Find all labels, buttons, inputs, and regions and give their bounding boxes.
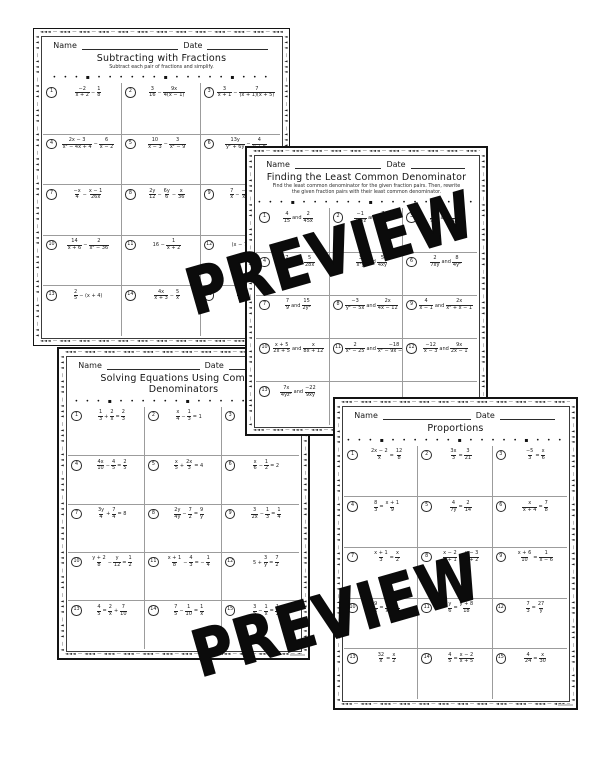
problem-expression: 4x10−45=25 — [95, 460, 129, 473]
problem-cell: 7 79and152y² — [256, 295, 329, 338]
problem-number: 5 — [148, 460, 159, 471]
problem-number: 12 — [204, 240, 215, 251]
border-pattern-bottom: ◄◄◄ — ◄◄◄ — ◄◄◄ — ◄◄◄ — ◄◄◄ — ◄◄◄ — ◄◄◄ … — [341, 702, 570, 707]
date-blank-line — [500, 410, 555, 420]
problem-number: 5 — [125, 139, 136, 150]
problem-cell: 1 −2x + 2−18 — [43, 83, 122, 134]
problem-number: 1 — [71, 411, 82, 422]
problem-cell: 11 x + 18−43= −14 — [145, 552, 222, 600]
problem-cell: 13 45=2x+710 — [68, 600, 145, 648]
problem-cell: 4 83=x + 19 — [344, 496, 418, 547]
problem-number: 6 — [204, 139, 215, 150]
problem-number: 15 — [225, 605, 236, 616]
problem-cell: 1 2x − 2x=128 — [344, 446, 418, 497]
problem-expression: 3x3=321 — [448, 449, 474, 462]
problem-cell: 15 424=x30 — [493, 648, 567, 699]
problem-expression: x4−13= 1 — [174, 410, 204, 423]
problem-expression: 7x4yz²and−229xy — [278, 386, 318, 399]
name-blank-line — [383, 410, 471, 420]
worksheet-least-common-denominator: ◄◄◄ — ◄◄◄ — ◄◄◄ — ◄◄◄ — ◄◄◄ — ◄◄◄ — ◄◄◄ … — [245, 146, 488, 436]
problem-cell: 11 2x² − 25and−18x² − 9x − 18 — [330, 338, 403, 381]
problem-number: 14 — [421, 653, 432, 664]
problem-expression: 316−9x4(x − 1) — [147, 87, 187, 100]
problem-expression: 2x − 3x² − 4x + 4−6x − 2 — [60, 138, 116, 151]
problem-expression: 16 −1x + 2 — [151, 239, 183, 252]
problem-number: 9 — [225, 509, 236, 520]
problem-number: 11 — [148, 557, 159, 568]
problem-cell: 5 10x − 3−3x² − 9 — [122, 134, 201, 185]
problem-cell: 7 x + 13=x2 — [344, 547, 418, 598]
problems-grid: 1 13+2x=23 2 x4−13= 1 3 x2+14= 3 4 — [68, 407, 298, 649]
problem-cell: 8 −3y² − 5xand2x4x − 12 — [330, 295, 403, 338]
page-title: Subtracting with Fractions — [41, 53, 281, 64]
problem-number: 5 — [333, 257, 344, 268]
problem-expression: x + 610=1x − 6 — [515, 551, 555, 564]
problem-number: 2 — [148, 411, 159, 422]
problem-expression: 32x=x2 — [375, 653, 398, 666]
problem-number: 4 — [347, 501, 358, 512]
problem-cell: 15 35−1x=12 — [222, 600, 299, 648]
problem-number: 8 — [333, 300, 344, 311]
problem-cell: 5 x5+2x3= 4 — [145, 455, 222, 503]
problem-cell: 4 4x10−45=25 — [68, 455, 145, 503]
problem-number: 9 — [496, 552, 507, 563]
problem-cell: 1 13+2x=23 — [68, 407, 145, 455]
name-date-row: Name Date — [53, 40, 269, 50]
problem-cell: 10 x + 52x + 5andx8x + 12 — [256, 338, 329, 381]
border-pattern-left: ◄◄◄ — ◄◄◄ — ◄◄◄ — ◄◄◄ — ◄◄◄ — ◄◄◄ — ◄◄◄ … — [60, 355, 65, 652]
problem-cell: 2 −12xyzand7xy²z³ — [330, 208, 403, 251]
problem-expression: 14x + 6−2x² − 36 — [65, 239, 110, 252]
problem-number: 6 — [496, 501, 507, 512]
problem-cell: 13 7x4yz²and−229xy — [256, 381, 329, 424]
problem-expression: 3y4+74= 8 — [95, 508, 128, 521]
border-pattern-right: ◄◄◄ — ◄◄◄ — ◄◄◄ — ◄◄◄ — ◄◄◄ — ◄◄◄ — ◄◄◄ … — [570, 405, 575, 702]
problem-expression: 32x−13=14 — [249, 508, 283, 521]
problem-number: 9 — [204, 189, 215, 200]
problem-cell: 1 415and245x — [256, 208, 329, 251]
problem-number: 13 — [71, 605, 82, 616]
problem-number: 13 — [259, 386, 270, 397]
border-pattern-top: ◄◄◄ — ◄◄◄ — ◄◄◄ — ◄◄◄ — ◄◄◄ — ◄◄◄ — ◄◄◄ … — [341, 400, 570, 405]
date-label: Date — [183, 42, 202, 50]
problem-cell: 3 3x + 1−7(x + 1)(x + 5) — [201, 83, 280, 134]
name-blank-line — [295, 159, 382, 169]
problem-number: 6 — [406, 257, 417, 268]
name-label: Name — [53, 42, 77, 50]
problem-expression: 424=x30 — [522, 653, 548, 666]
problem-expression: −12xyzand7xy²z³ — [352, 212, 392, 225]
problem-expression: 73=27y — [524, 602, 547, 615]
problem-number: 7 — [259, 300, 270, 311]
name-label: Name — [78, 362, 102, 370]
problem-number: 15 — [496, 653, 507, 664]
problem-expression: 47y=214 — [448, 501, 474, 514]
problem-number: 7 — [347, 552, 358, 563]
problem-number: 3 — [225, 411, 236, 422]
border-pattern-top: ◄◄◄ — ◄◄◄ — ◄◄◄ — ◄◄◄ — ◄◄◄ — ◄◄◄ — ◄◄◄ … — [253, 149, 480, 154]
problem-cell: 3 −49u²and315v — [403, 208, 476, 251]
problem-expression: 4x − 1and2xx² + x − 1 — [417, 299, 475, 312]
problem-cell: 5 47y=214 — [418, 496, 492, 547]
problem-number: 8 — [148, 509, 159, 520]
problem-cell: 14 75−110=1x — [145, 600, 222, 648]
problem-number: 8 — [125, 189, 136, 200]
problem-expression: 75−110=1x — [172, 605, 206, 618]
problem-expression: 9x=28x + 3 — [372, 602, 402, 615]
problem-number: 4 — [71, 460, 82, 471]
date-label: Date — [386, 161, 405, 169]
problem-number: 12 — [496, 603, 507, 614]
name-date-row: Name Date — [354, 410, 556, 420]
problem-cell: 3 −53=x6 — [493, 446, 567, 497]
problem-cell: 12 −12x − 3and9x2x − 1 — [403, 338, 476, 381]
border-pattern-bottom: ◄◄◄ — ◄◄◄ — ◄◄◄ — ◄◄◄ — ◄◄◄ — ◄◄◄ — ◄◄◄ … — [65, 652, 302, 657]
problem-cell: 6 27xyand84y² — [403, 252, 476, 295]
problem-expression: −49u²and315v — [428, 212, 464, 225]
page-title: Finding the Least Common Denominator — [254, 172, 478, 183]
problem-expression: 83=x + 19 — [372, 501, 402, 514]
problem-expression: 45=2x+710 — [95, 605, 129, 618]
problem-cell: 14 45=x − 2x + 5 — [418, 648, 492, 699]
problem-cell: 12 5 +3y=72 — [222, 552, 299, 600]
dots-divider: • • • ▪ • • • • • • ▪ • • • • • ▪ • • • — [342, 437, 568, 444]
problem-cell: 13 25− (x + 4) — [43, 285, 122, 336]
border-pattern-top: ◄◄◄ — ◄◄◄ — ◄◄◄ — ◄◄◄ — ◄◄◄ — ◄◄◄ — ◄◄◄ … — [40, 30, 283, 35]
problem-number: 4 — [259, 257, 270, 268]
problem-number: 11 — [125, 240, 136, 251]
problem-expression: 415and245x — [281, 212, 315, 225]
problem-number: 8 — [421, 552, 432, 563]
problem-expression: x + 52x + 5andx8x + 12 — [271, 343, 326, 356]
problem-number: 3 — [406, 212, 417, 223]
problem-number: 2 — [333, 212, 344, 223]
problem-cell: 2 316−9x4(x − 1) — [122, 83, 201, 134]
problem-expression: 25− (x + 4) — [72, 290, 105, 303]
problem-expression: 10x − 3−3x² − 9 — [146, 138, 188, 151]
problem-cell: 11 y6=y + 818 — [418, 598, 492, 649]
problem-cell: 5 3x²yand54xy — [330, 252, 403, 295]
problem-number: 12 — [225, 557, 236, 568]
problem-expression: 2x − 2x=128 — [368, 449, 404, 462]
problem-number: 10 — [259, 343, 270, 354]
name-label: Name — [266, 161, 290, 169]
border-pattern-right: ◄◄◄ — ◄◄◄ — ◄◄◄ — ◄◄◄ — ◄◄◄ — ◄◄◄ — ◄◄◄ … — [480, 154, 485, 428]
problem-number: 10 — [71, 557, 82, 568]
page-title: Proportions — [342, 423, 568, 434]
problem-number: 4 — [46, 139, 57, 150]
dots-divider: • • • ▪ • • • • • • ▪ • • • • • ▪ • • • — [41, 74, 281, 81]
problem-cell: 9 x + 610=1x − 6 — [493, 547, 567, 598]
date-label: Date — [476, 412, 495, 420]
worksheet-proportions: ◄◄◄ — ◄◄◄ — ◄◄◄ — ◄◄◄ — ◄◄◄ — ◄◄◄ — ◄◄◄ … — [333, 397, 578, 710]
problem-cell: 13 32x=x2 — [344, 648, 418, 699]
problem-number: 13 — [347, 653, 358, 664]
problem-number: 10 — [46, 240, 57, 251]
dots-divider: • • • ▪ • • • • • • ▪ • • • • • ▪ • • • — [254, 199, 478, 206]
problem-expression: 3x²yand54xy — [354, 256, 389, 269]
border-pattern-left: ◄◄◄ — ◄◄◄ — ◄◄◄ — ◄◄◄ — ◄◄◄ — ◄◄◄ — ◄◄◄ … — [35, 35, 40, 339]
problem-cell: 10 14x + 6−2x² − 36 — [43, 235, 122, 286]
problem-cell: 7 3y4+74= 8 — [68, 504, 145, 552]
problem-number: 5 — [421, 501, 432, 512]
problem-number: 6 — [225, 460, 236, 471]
problem-expression: −12x − 3and9x2x − 1 — [421, 343, 470, 356]
problem-number: 14 — [148, 605, 159, 616]
problem-cell: 8 x − 2x + 1=x − 3x + 2 — [418, 547, 492, 598]
problem-cell: 10 9x=28x + 3 — [344, 598, 418, 649]
problems-grid: 1 2x − 2x=128 2 3x3=321 3 −53=x6 4 — [344, 446, 566, 699]
problem-cell: 6 x6−12= 2 — [222, 455, 299, 503]
problem-number: 3 — [204, 87, 215, 98]
problem-cell: 4 2x − 3x² − 4x + 4−6x − 2 — [43, 134, 122, 185]
problem-expression: y + 28−y12=12 — [90, 556, 134, 569]
problem-cell: 14 4xx + 3−5x — [122, 285, 201, 336]
problem-expression: x + 13=x2 — [372, 551, 402, 564]
page-subtitle: Subtract each pair of fractions and simp… — [41, 65, 281, 71]
problem-cell: 8 2y4y−72=9y — [145, 504, 222, 552]
problem-expression: 45=x − 2x + 5 — [446, 653, 476, 666]
problem-expression: 2y12−6y6−x36 — [147, 189, 187, 202]
problem-expression: 79and152y² — [283, 299, 313, 312]
name-label: Name — [354, 412, 378, 420]
problem-number: 1 — [259, 212, 270, 223]
problem-number: 9 — [406, 300, 417, 311]
date-blank-line — [411, 159, 465, 169]
problem-number: 3 — [496, 450, 507, 461]
problem-expression: x6−12= 2 — [251, 460, 281, 473]
border-pattern-left: ◄◄◄ — ◄◄◄ — ◄◄◄ — ◄◄◄ — ◄◄◄ — ◄◄◄ — ◄◄◄ … — [336, 405, 341, 702]
problem-number: 15 — [204, 290, 215, 301]
problem-number: 2 — [421, 450, 432, 461]
problem-expression: 2y4y−72=9y — [172, 508, 206, 521]
problem-number: 11 — [421, 603, 432, 614]
preview-canvas: ◄◄◄ — ◄◄◄ — ◄◄◄ — ◄◄◄ — ◄◄◄ — ◄◄◄ — ◄◄◄ … — [0, 0, 600, 776]
date-blank-line — [207, 40, 267, 50]
problem-cell: 10 y + 28−y12=12 — [68, 552, 145, 600]
problem-cell: 7 −x4−x − 126x — [43, 184, 122, 235]
problem-number: 7 — [71, 509, 82, 520]
problem-expression: 3x + 1−7(x + 1)(x + 5) — [215, 87, 277, 100]
page-subtitle: Find the least common denominator for th… — [254, 184, 478, 196]
problem-expression: x − 2x + 1=x − 3x + 2 — [441, 551, 481, 564]
problem-cell: 2 x4−13= 1 — [145, 407, 222, 455]
problem-expression: xx + 4=78 — [520, 501, 550, 514]
name-blank-line — [82, 40, 178, 50]
problem-number: 2 — [125, 87, 136, 98]
problem-number: 13 — [46, 290, 57, 301]
problem-expression: y6=y + 818 — [446, 602, 476, 615]
date-label: Date — [205, 362, 224, 370]
problem-cell: 4 714xand528x — [256, 252, 329, 295]
name-date-row: Name Date — [266, 159, 466, 169]
problem-expression: 5 +3y=72 — [251, 556, 281, 569]
problem-expression: 13+2x=23 — [96, 410, 127, 423]
problem-cell: 9 4x − 1and2xx² + x − 1 — [403, 295, 476, 338]
border-pattern-left: ◄◄◄ — ◄◄◄ — ◄◄◄ — ◄◄◄ — ◄◄◄ — ◄◄◄ — ◄◄◄ … — [248, 154, 253, 428]
problem-number: 10 — [347, 603, 358, 614]
problem-number: 14 — [125, 290, 136, 301]
problem-cell: 6 xx + 4=78 — [493, 496, 567, 547]
problem-expression: x + 18−43= −14 — [165, 556, 212, 569]
problem-cell: 12 73=27y — [493, 598, 567, 649]
problem-expression: −53=x6 — [523, 449, 547, 462]
problem-cell: 9 32x−13=14 — [222, 504, 299, 552]
problem-number: 7 — [46, 189, 57, 200]
problem-expression: −3y² − 5xand2x4x − 12 — [343, 299, 400, 312]
problem-number: 1 — [347, 450, 358, 461]
problem-cell: 11 16 −1x + 2 — [122, 235, 201, 286]
problem-cell: 8 2y12−6y6−x36 — [122, 184, 201, 235]
problems-grid: 1 415and245x 2 −12xyzand7xy²z³ 3 −49u²an… — [256, 208, 476, 424]
problem-number: 12 — [406, 343, 417, 354]
problem-number: 11 — [333, 343, 344, 354]
problem-expression: 35−1x=12 — [251, 605, 282, 618]
problem-expression: 27xyand84y² — [428, 256, 464, 269]
problem-number: 1 — [46, 87, 57, 98]
problem-cell: 2 3x3=321 — [418, 446, 492, 497]
problem-expression: −x4−x − 126x — [71, 189, 105, 202]
problem-expression: 714xand528x — [280, 256, 317, 269]
name-blank-line — [107, 360, 200, 370]
problem-expression: −2x + 2−18 — [73, 87, 103, 100]
problem-expression: 2x² − 25and−18x² − 9x − 18 — [343, 343, 403, 356]
problem-expression: x5+2x3= 4 — [172, 460, 205, 473]
problem-expression: 4xx + 3−5x — [152, 290, 182, 303]
